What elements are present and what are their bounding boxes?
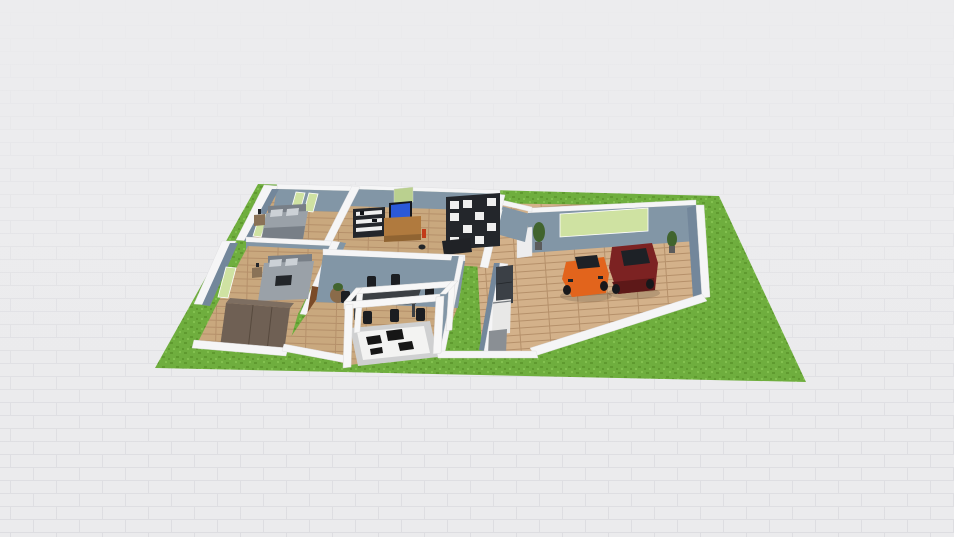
tv-screen (391, 203, 410, 219)
kitchen-counter (492, 299, 511, 335)
refrigerator-body (496, 265, 513, 305)
kitchen-counter-body (492, 299, 511, 335)
shelf-item (360, 211, 364, 215)
rug-patch (386, 329, 404, 341)
sedan-windshield (621, 248, 650, 266)
wall-shelf (353, 207, 385, 238)
sports-car-headlight (568, 279, 573, 282)
pergola-post-front-left (343, 304, 353, 368)
refrigerator (496, 265, 513, 305)
potted-plant-right (667, 231, 677, 247)
side-table-plant (333, 283, 343, 291)
bookshelf-cubby (487, 223, 496, 231)
nightstand-2 (252, 267, 262, 278)
bookshelf-cubby (487, 198, 496, 206)
plant-pot (535, 242, 542, 250)
nightstand-1 (254, 214, 265, 226)
bookshelf-cubby (463, 200, 472, 208)
floorplan-stage (0, 0, 954, 537)
sedan (609, 243, 658, 294)
table-leg (412, 302, 415, 317)
bookshelf-cubby (450, 201, 459, 209)
bed1-pillow (286, 208, 299, 216)
dining-chair (391, 274, 400, 286)
bookshelf-cubby (475, 212, 484, 220)
potted-plant-left (533, 222, 545, 242)
pet (419, 245, 426, 250)
sports-car-wheel (563, 285, 571, 295)
dining-chair (363, 311, 372, 324)
shelf-item (372, 219, 377, 222)
bed1-pillow (270, 209, 283, 217)
floorplan-3d-viewport[interactable] (0, 0, 954, 537)
kitchen-front-wall (436, 351, 538, 358)
sports-car-wheel (600, 281, 608, 291)
bookshelf-cubby (450, 213, 459, 221)
lamp (258, 209, 261, 214)
plant-pot (669, 246, 675, 253)
dining-chair (390, 309, 399, 322)
bed2-tv (275, 275, 292, 286)
bed-1 (261, 204, 308, 241)
sofa (442, 238, 472, 255)
red-vase (422, 229, 426, 238)
lamp (256, 263, 259, 267)
tv-desk (384, 216, 421, 242)
bed2-pillow (285, 258, 298, 266)
bed2-pillow (269, 259, 282, 267)
sedan-wheel (612, 284, 620, 294)
dining-chair (416, 308, 425, 321)
sedan-wheel (646, 279, 654, 289)
dining-chair (367, 276, 376, 288)
bookshelf-cubby (475, 236, 484, 244)
sports-car-headlight (598, 276, 603, 279)
bookshelf-cubby (463, 225, 472, 233)
sports-car-windshield (575, 255, 600, 269)
